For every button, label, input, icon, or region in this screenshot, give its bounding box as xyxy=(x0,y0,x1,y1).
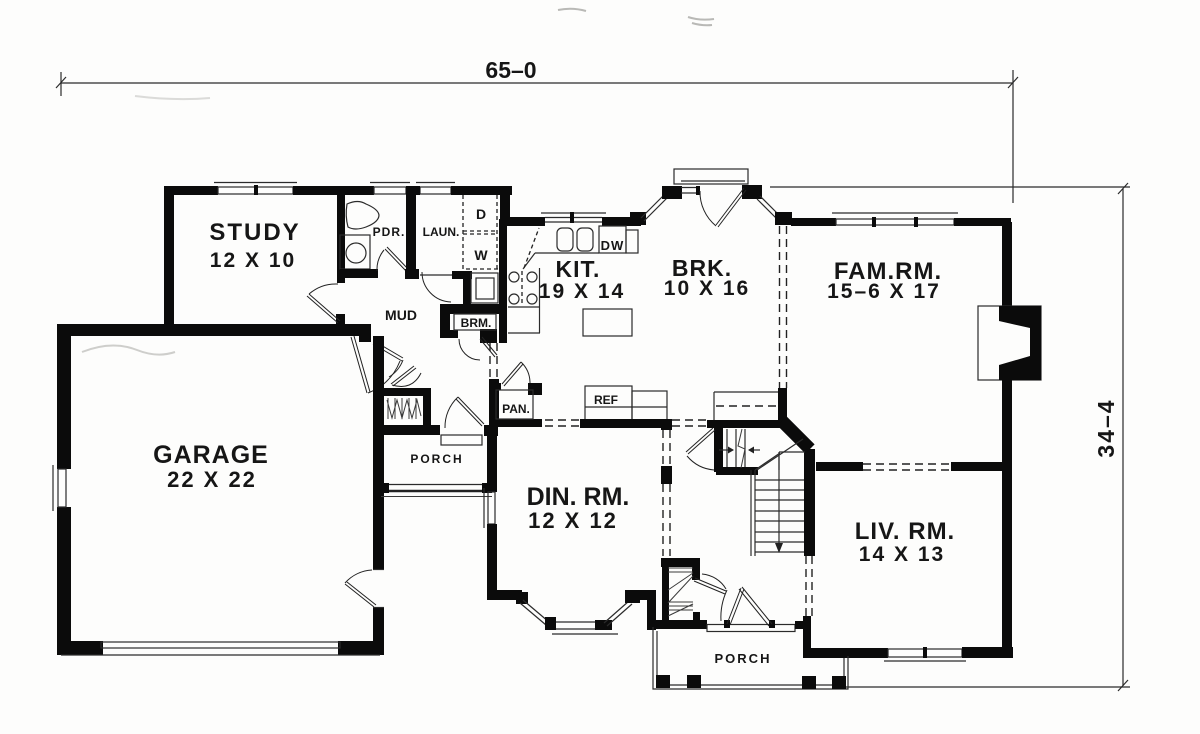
svg-text:DIN. RM.: DIN. RM. xyxy=(527,483,630,511)
svg-text:12 X 10: 12 X 10 xyxy=(210,249,296,272)
svg-text:BRM.: BRM. xyxy=(461,316,492,330)
svg-text:LIV. RM.: LIV. RM. xyxy=(855,518,955,545)
svg-text:14 X 13: 14 X 13 xyxy=(859,543,945,566)
svg-text:D: D xyxy=(476,206,486,222)
svg-text:65–0: 65–0 xyxy=(485,57,536,83)
svg-text:19 X 14: 19 X 14 xyxy=(539,280,625,303)
svg-text:PORCH: PORCH xyxy=(410,452,463,466)
svg-text:DW: DW xyxy=(601,238,624,253)
svg-text:15–6 X 17: 15–6 X 17 xyxy=(827,280,941,303)
svg-text:STUDY: STUDY xyxy=(209,219,300,246)
svg-text:12 X 12: 12 X 12 xyxy=(528,508,618,533)
svg-text:LAUN.: LAUN. xyxy=(423,225,460,239)
svg-text:KIT.: KIT. xyxy=(556,256,601,282)
svg-text:22 X 22: 22 X 22 xyxy=(167,467,257,492)
svg-text:10 X 16: 10 X 16 xyxy=(664,277,750,300)
svg-text:34–4: 34–4 xyxy=(1093,398,1119,457)
svg-text:MUD: MUD xyxy=(385,307,417,323)
svg-text:PDR.: PDR. xyxy=(373,225,406,239)
svg-text:PAN.: PAN. xyxy=(502,402,530,416)
svg-text:REF: REF xyxy=(594,393,618,407)
svg-text:GARAGE: GARAGE xyxy=(153,441,269,469)
svg-text:PORCH: PORCH xyxy=(715,651,772,666)
svg-text:W: W xyxy=(474,247,488,263)
